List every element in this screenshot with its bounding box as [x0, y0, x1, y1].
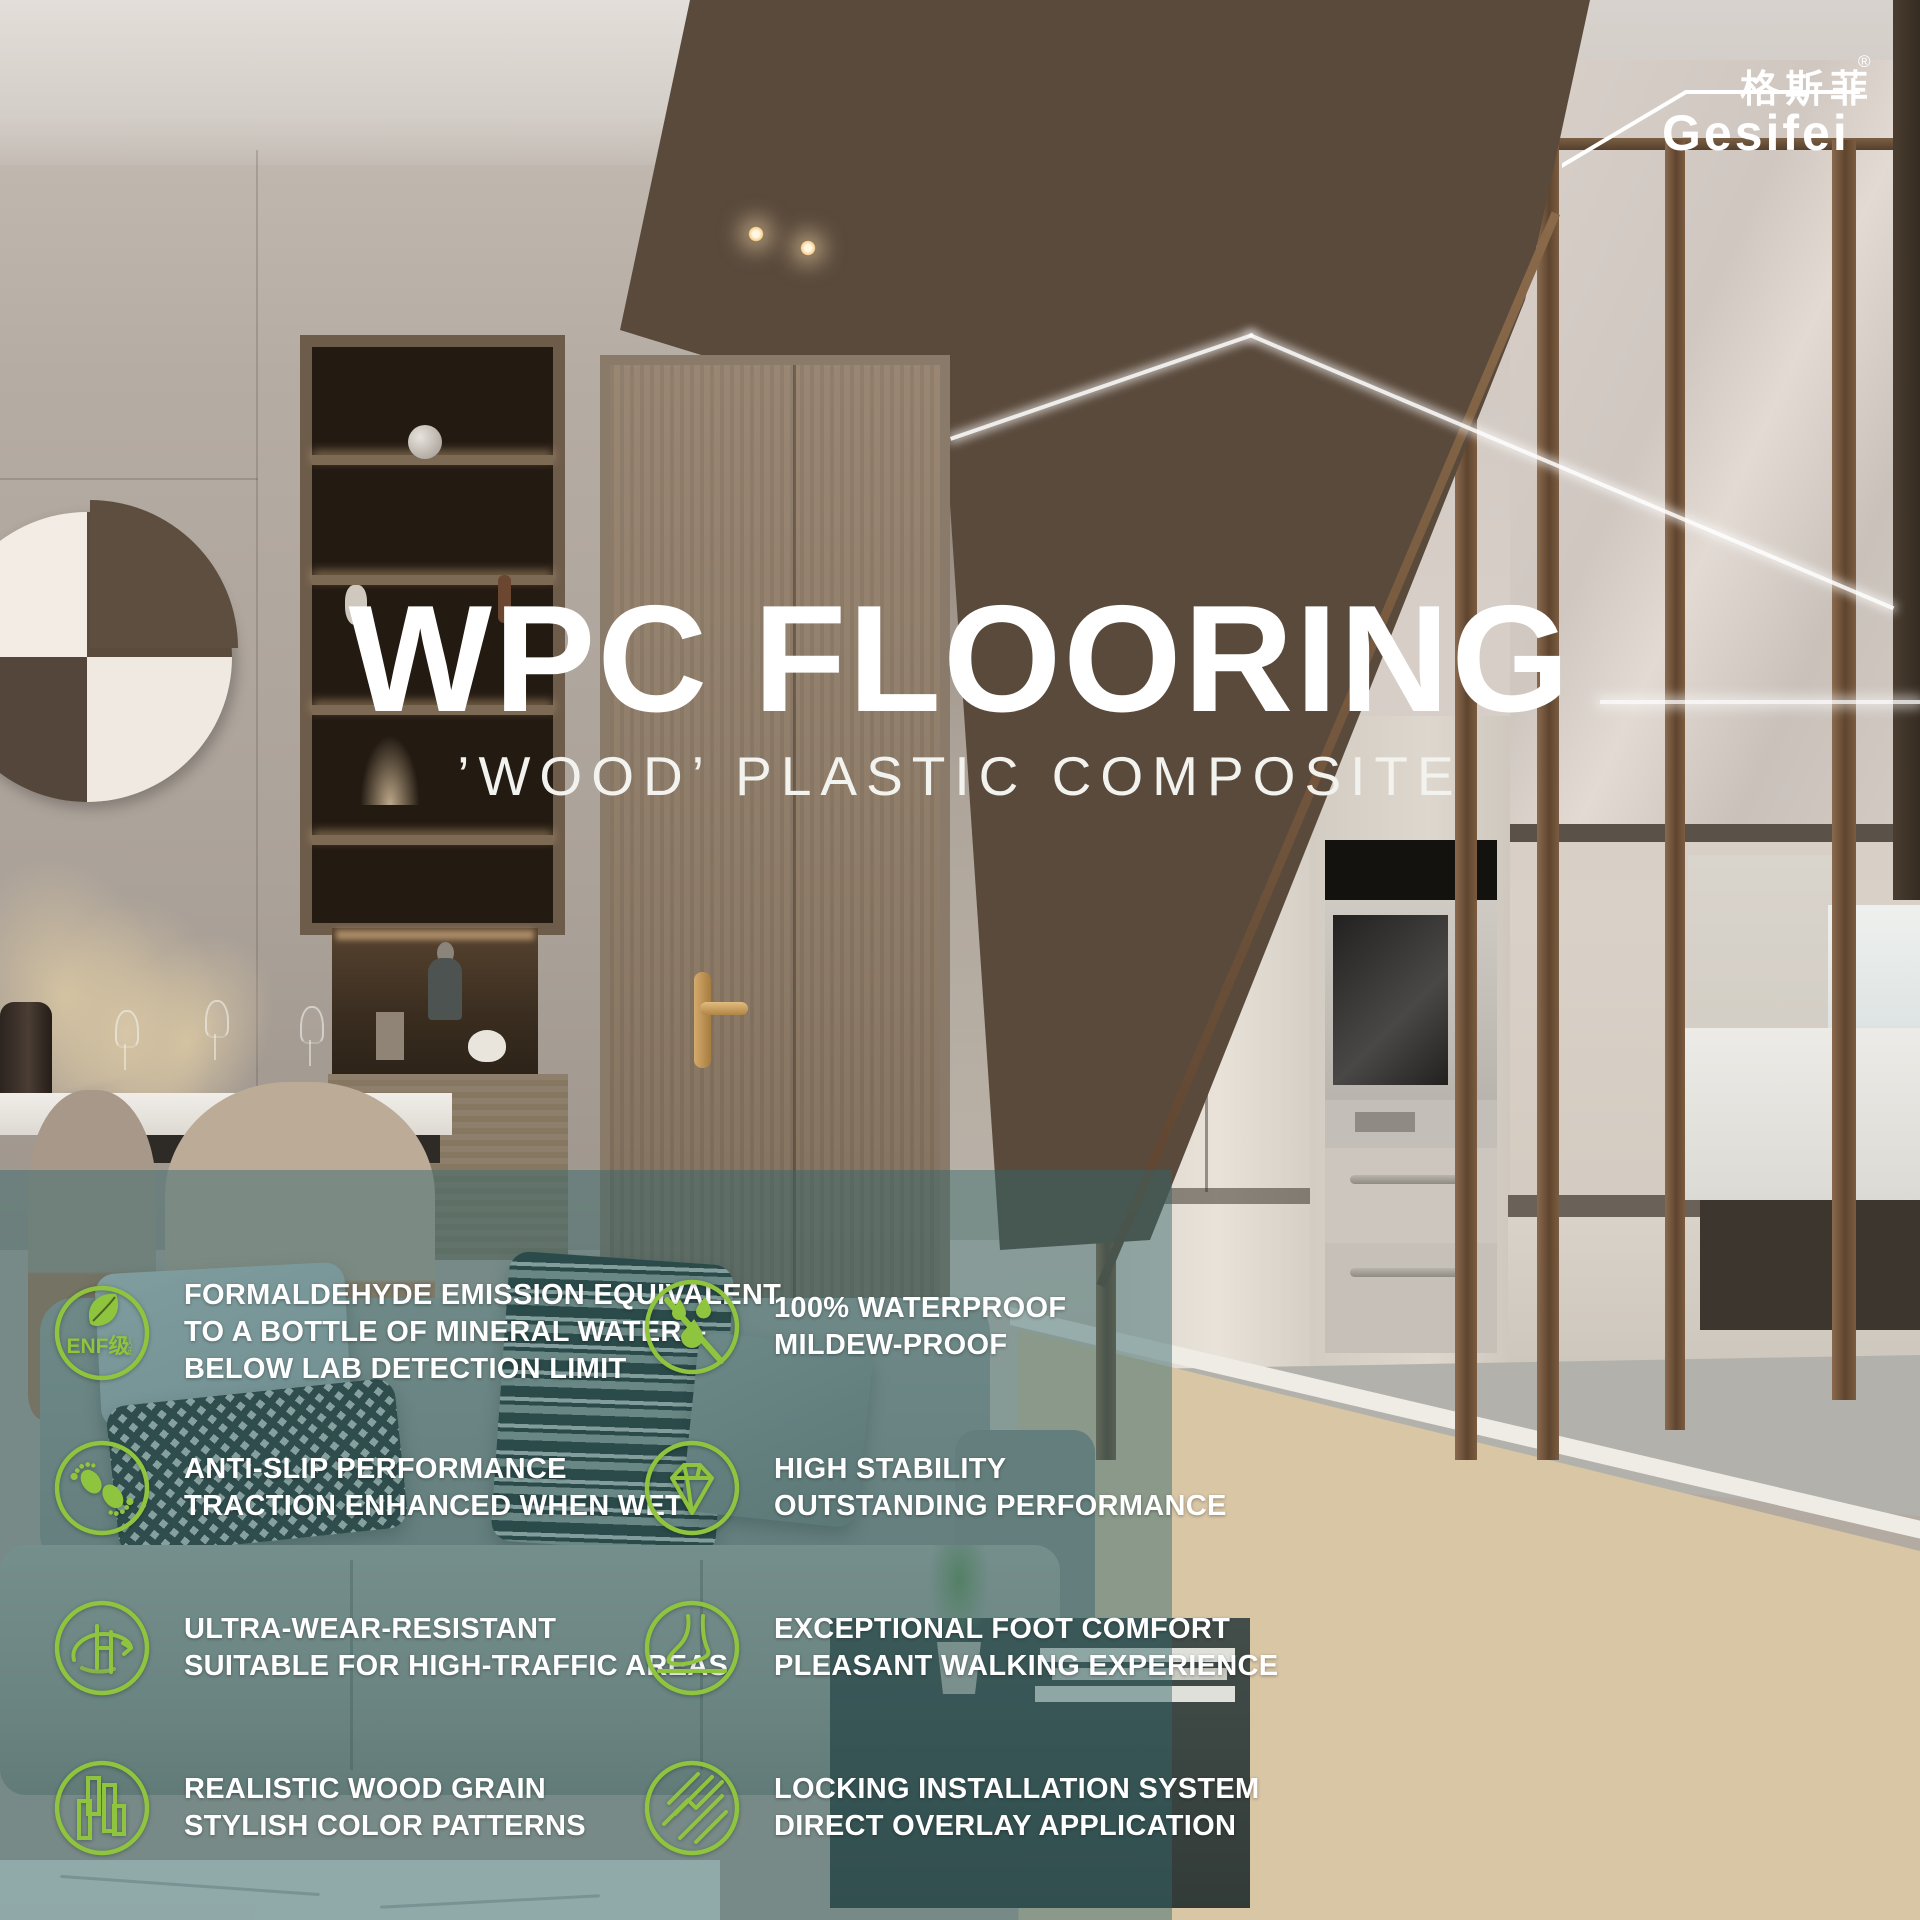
bronze-stile: [1832, 140, 1856, 1400]
bronze-stile: [1537, 140, 1559, 1460]
feature-foot-comfort: EXCEPTIONAL FOOT COMFORT PLEASANT WALKIN…: [642, 1598, 1278, 1698]
oven-display: [1355, 1112, 1415, 1132]
waterproof-drops-icon: [642, 1277, 742, 1377]
feature-wood-grain: REALISTIC WOOD GRAIN STYLISH COLOR PATTE…: [52, 1758, 586, 1858]
decor-sphere: [408, 425, 442, 459]
feature-line: OUTSTANDING PERFORMANCE: [774, 1488, 1227, 1525]
feature-line: 100% WATERPROOF: [774, 1290, 1066, 1327]
wine-glass: [205, 1000, 229, 1038]
brand-logo: 格斯菲 ® Gesifei: [1562, 52, 1902, 202]
sculpture-bust: [428, 958, 462, 1020]
bronze-stile: [1665, 140, 1685, 1430]
wine-glass-stem: [309, 1040, 311, 1066]
registered-trademark: ®: [1858, 52, 1871, 72]
foot-comfort-icon: [642, 1598, 742, 1698]
under-cabinet-led: [1600, 700, 1920, 704]
feature-stability: HIGH STABILITY OUTSTANDING PERFORMANCE: [642, 1438, 1227, 1538]
anti-slip-footprints-icon: [52, 1438, 152, 1538]
island-base: [1700, 1200, 1920, 1330]
svg-text:认证: 认证: [123, 1335, 133, 1354]
left-ceiling: [0, 0, 760, 165]
wall-panel-seam: [0, 478, 258, 480]
feature-locking-install: LOCKING INSTALLATION SYSTEM DIRECT OVERL…: [642, 1758, 1260, 1858]
oven-window: [1333, 915, 1448, 1085]
feature-wear-resistant: ULTRA-WEAR-RESISTANT SUITABLE FOR HIGH-T…: [52, 1598, 728, 1698]
door-handle-lever: [700, 1002, 748, 1015]
drawer-handle: [1350, 1175, 1470, 1184]
feature-anti-slip: ANTI-SLIP PERFORMANCE TRACTION ENHANCED …: [52, 1438, 683, 1538]
wine-glass-stem: [214, 1034, 216, 1060]
wine-glass-stem: [124, 1044, 126, 1070]
door-handle-plate: [694, 972, 711, 1068]
page-title: WPC FLOORING: [348, 572, 1571, 747]
feature-line: ANTI-SLIP PERFORMANCE: [184, 1451, 683, 1488]
feature-line: TRACTION ENHANCED WHEN WET: [184, 1488, 683, 1525]
island-counter: [1680, 1028, 1920, 1200]
feature-line: DIRECT OVERLAY APPLICATION: [774, 1808, 1260, 1845]
wine-glass: [300, 1006, 324, 1044]
feature-line: STYLISH COLOR PATTERNS: [184, 1808, 586, 1845]
wood-grain-icon: [52, 1758, 152, 1858]
wine-glass: [115, 1010, 139, 1048]
cabinet-reveal-line: [1510, 824, 1920, 842]
svg-text:ENF级: ENF级: [67, 1334, 130, 1358]
locking-installation-icon: [642, 1758, 742, 1858]
feature-line: LOCKING INSTALLATION SYSTEM: [774, 1771, 1260, 1808]
decor-jar: [468, 1030, 506, 1062]
drawer-handle: [1350, 1268, 1470, 1277]
ceiling-spotlight: [748, 226, 764, 242]
brand-name-english: Gesifei: [1662, 104, 1850, 162]
niche-light: [336, 930, 534, 940]
feature-line: PLEASANT WALKING EXPERIENCE: [774, 1648, 1278, 1685]
wear-resistant-orbit-icon: [52, 1598, 152, 1698]
stability-diamond-icon: [642, 1438, 742, 1538]
page-subtitle: ’WOOD’ PLASTIC COMPOSITE: [457, 744, 1462, 808]
feature-waterproof: 100% WATERPROOF MILDEW-PROOF: [642, 1277, 1066, 1377]
shelf: [312, 835, 553, 845]
feature-line: MILDEW-PROOF: [774, 1327, 1066, 1364]
decor-box: [376, 1012, 404, 1060]
feature-line: EXCEPTIONAL FOOT COMFORT: [774, 1611, 1278, 1648]
feature-line: REALISTIC WOOD GRAIN: [184, 1771, 586, 1808]
poster: Panasonic: [0, 0, 1920, 1920]
ceiling-spotlight: [800, 240, 816, 256]
enf-certification-leaf-icon: ENF级 认证: [52, 1283, 152, 1383]
feature-line: HIGH STABILITY: [774, 1451, 1227, 1488]
